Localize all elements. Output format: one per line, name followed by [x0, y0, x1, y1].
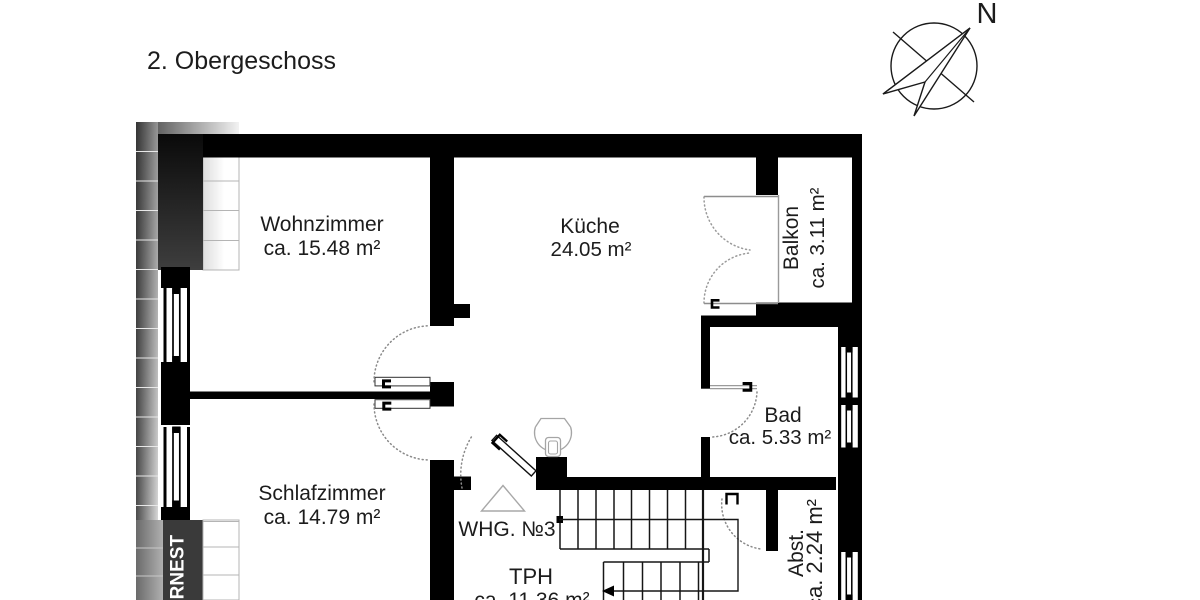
- svg-text:Schlafzimmer: Schlafzimmer: [258, 482, 385, 505]
- svg-text:ca. 3.11 m²: ca. 3.11 m²: [806, 187, 829, 288]
- svg-text:ca. 14.79 m²: ca. 14.79 m²: [264, 506, 381, 529]
- svg-text:ERNEST: ERNEST: [168, 535, 189, 600]
- svg-text:Küche: Küche: [560, 215, 620, 238]
- svg-text:Balkon: Balkon: [780, 206, 803, 270]
- svg-text:ca. 2.24 m²: ca. 2.24 m²: [802, 499, 827, 600]
- svg-text:Wohnzimmer: Wohnzimmer: [260, 213, 383, 236]
- svg-text:WHG. №3: WHG. №3: [458, 518, 555, 541]
- svg-text:N: N: [977, 0, 998, 30]
- svg-text:ca. 5.33 m²: ca. 5.33 m²: [729, 426, 832, 449]
- svg-text:ca. 11.36 m²: ca. 11.36 m²: [474, 589, 589, 600]
- svg-text:Bad: Bad: [764, 404, 801, 427]
- svg-text:24.05 m²: 24.05 m²: [551, 238, 632, 261]
- svg-text:2. Obergeschoss: 2. Obergeschoss: [147, 47, 336, 75]
- svg-text:TPH: TPH: [509, 564, 553, 589]
- svg-text:ca. 15.48 m²: ca. 15.48 m²: [264, 237, 381, 260]
